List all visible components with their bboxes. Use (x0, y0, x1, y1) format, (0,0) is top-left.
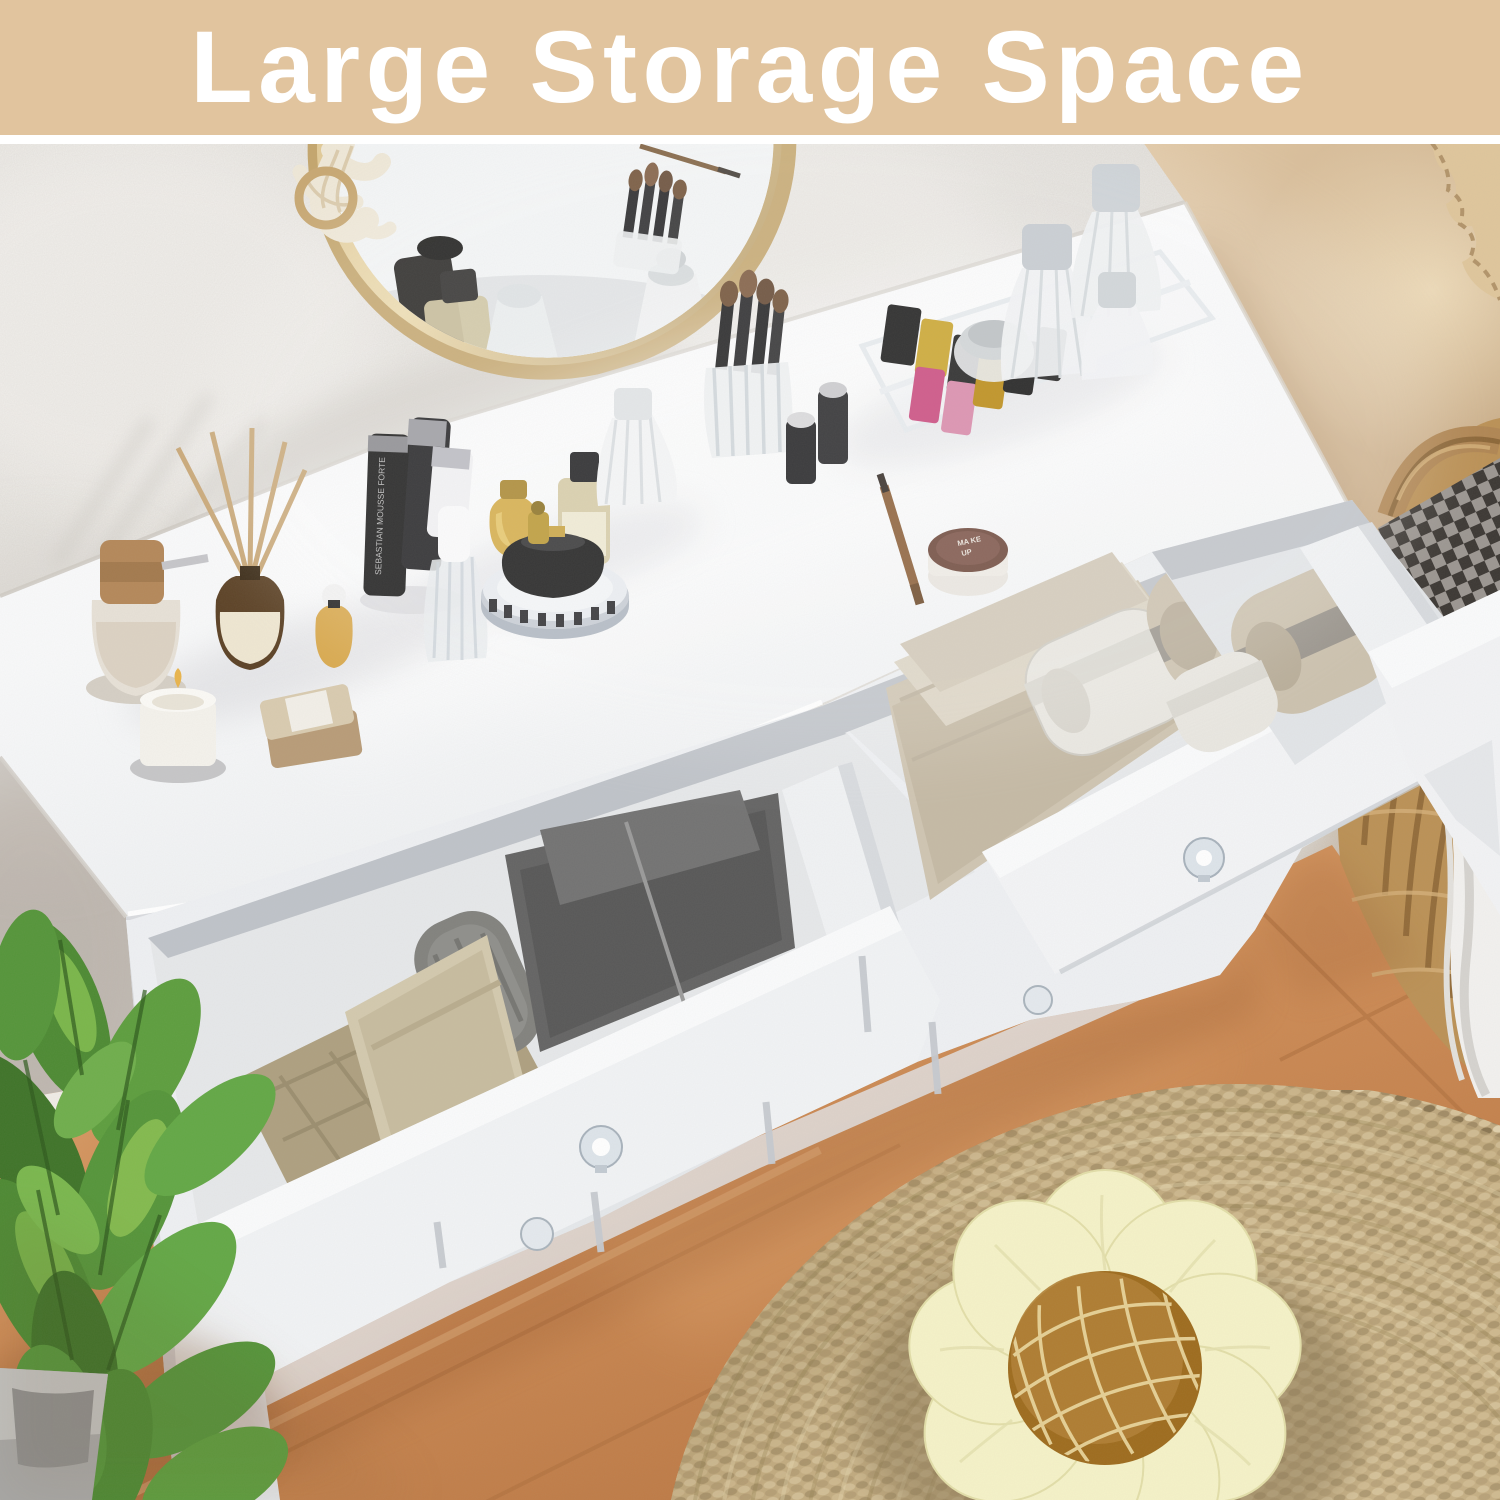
svg-text:Large Storage Space: Large Storage Space (190, 10, 1309, 124)
